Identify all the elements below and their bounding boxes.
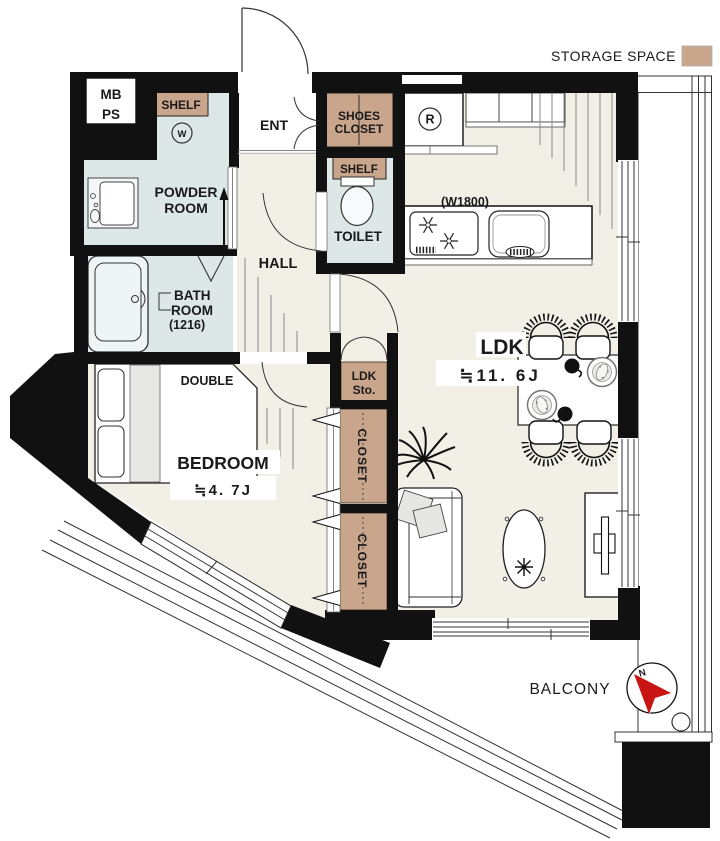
sofa-cushion (413, 504, 447, 538)
wall (229, 90, 239, 168)
bathtub-icon (88, 256, 148, 352)
pillow-icon (98, 426, 124, 477)
bath-room-size: (1216) (169, 318, 205, 332)
bath-room-label: ROOM (171, 303, 213, 318)
window (616, 438, 640, 588)
wall (316, 263, 405, 274)
bedroom-door-opening (240, 352, 307, 364)
compass-icon: N (627, 663, 677, 714)
balcony-partition-panel (615, 732, 712, 742)
toilet-bowl-icon (341, 177, 374, 226)
kitchen-cabinets (466, 93, 565, 127)
entrance-door (242, 8, 308, 74)
wall (70, 245, 237, 256)
vanity-sink-icon (88, 178, 138, 228)
sink-icon (489, 211, 549, 258)
powder-room-sliding-door (228, 167, 237, 249)
hall-label: HALL (259, 256, 298, 272)
ldk-storage-label: Sto. (353, 383, 376, 397)
bedroom-size-label: ≒4. 7J (194, 482, 252, 499)
double-bed-label: DOUBLE (181, 374, 234, 388)
wall-vent (402, 75, 462, 84)
floor-plan: STORAGE SPACE MB PS SHELF W POWDER ROOM … (0, 0, 720, 841)
tv-board (585, 493, 622, 597)
entrance-opening (238, 72, 312, 93)
shoes-closet-label: SHOES (338, 109, 380, 123)
ldk-label: LDK (480, 336, 523, 359)
wall (74, 250, 88, 362)
storage-space-legend-label: STORAGE SPACE (551, 48, 676, 64)
tv-icon (602, 517, 609, 574)
shoes-closet-label: CLOSET (335, 122, 384, 136)
kitchen-width-label: (W1800) (441, 195, 489, 209)
wall (616, 72, 638, 162)
powder-room-label: ROOM (164, 200, 208, 216)
window (616, 160, 640, 322)
pillow-icon (98, 369, 124, 421)
sofa (394, 488, 462, 607)
stove-icon (410, 212, 478, 255)
toilet-shelf-label: SHELF (340, 164, 378, 176)
flower-icon (515, 558, 533, 576)
wall (330, 333, 341, 408)
powder-shelf-label: SHELF (161, 98, 200, 112)
wall (325, 610, 435, 640)
wall (393, 93, 405, 273)
wall (333, 504, 392, 513)
window (432, 618, 590, 640)
coffee-table (503, 510, 545, 588)
ldk-size-label: ≒11. 6J (459, 366, 541, 385)
mb-label: MB (101, 87, 122, 102)
balcony-wall-block (622, 742, 710, 828)
ent-label: ENT (260, 117, 288, 133)
closet-lower-label: CLOSET (355, 534, 369, 589)
powder-room-label: POWDER (155, 184, 218, 200)
wall (618, 320, 638, 440)
balcony-label: BALCONY (529, 681, 610, 698)
ldk-storage-label: LDK (352, 369, 377, 383)
toilet-label: TOILET (334, 229, 383, 244)
wall (618, 586, 640, 640)
bath-room-label: BATH (174, 288, 211, 303)
wall (333, 400, 392, 409)
bedroom-label: BEDROOM (177, 453, 268, 473)
wall (387, 333, 398, 618)
balcony-drain (672, 713, 690, 731)
closet-upper-label: CLOSET (355, 429, 369, 484)
fridge-mark: R (425, 113, 434, 127)
storage-space-swatch (682, 46, 712, 66)
wall (316, 147, 405, 158)
wall (588, 620, 620, 640)
ps-label: PS (102, 107, 120, 122)
washer-label: W (178, 129, 187, 140)
